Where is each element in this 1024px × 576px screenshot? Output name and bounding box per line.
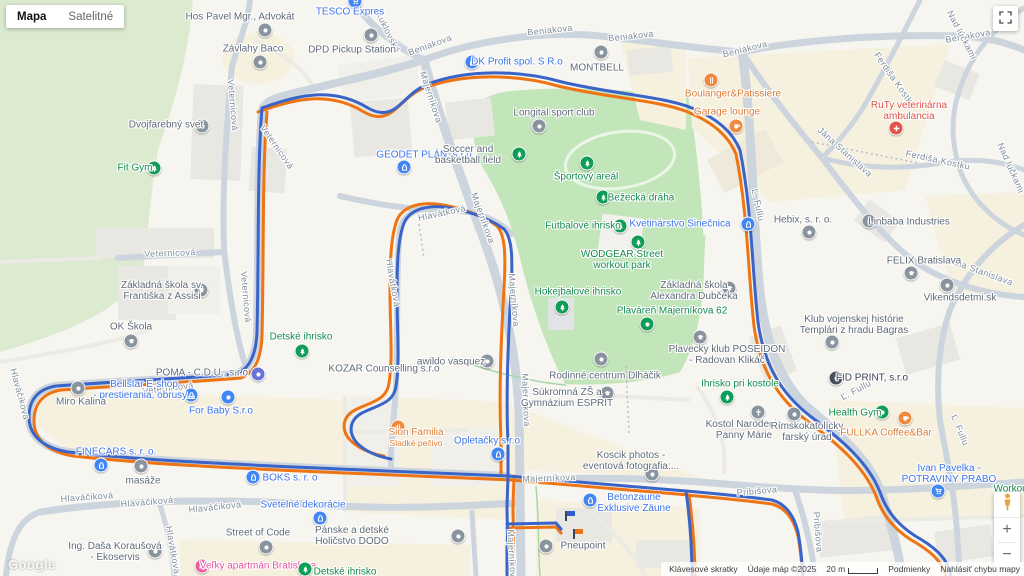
poi-label-soccer-basketball-field[interactable]: Soccer andbasketball field [435,144,501,166]
poi-label-plavecky-klub-poseidon[interactable]: Plavecky klub POSEIDON- Radovan Klikáč [669,344,786,366]
dot-icon[interactable] [134,459,149,474]
tree-icon[interactable] [555,300,570,315]
dot-icon[interactable] [258,23,273,38]
lock-icon[interactable] [94,458,109,473]
poi-label-fid-print[interactable]: FID PRINT, s.r.o [836,373,908,384]
dot-icon[interactable] [825,335,840,350]
poi-label-ivan-pavelka-potraviny[interactable]: Ivan Pavelka -POTRAVINY PRABO [902,463,997,485]
poi-label-plavaren-majernikova-62[interactable]: Plaváreň Majerníkova 62 [617,306,728,317]
poi-label-zs-alexandra-dubceka[interactable]: Základná školaAlexandra Dubčeka [650,280,737,302]
dot-icon[interactable] [451,529,466,544]
school-icon[interactable] [124,334,139,349]
report-map-error-link[interactable]: Nahlásiť chybu mapy [940,564,1020,574]
school-icon[interactable] [693,330,708,345]
poi-label-health-gym[interactable]: Health Gym [829,408,882,419]
lock-icon[interactable] [397,160,412,175]
poi-label-rimskokatolicky-urad[interactable]: Rímskokatolíckyfarský úrad [771,421,844,443]
poi-label-futbalove-ihrisko[interactable]: Futbalové ihrisko [545,221,621,232]
poi-label-vikendsdetmi[interactable]: Vikendsdetmi.sk [924,293,997,304]
tree-icon[interactable] [720,390,735,405]
poi-label-miro-kalina[interactable]: Miro Kalina [56,397,106,408]
dot-icon[interactable] [594,45,609,60]
poi-label-poma-cdu[interactable]: POMA - C.D.U., s.r.o [156,368,248,379]
poi-label-dvojfarebny-svet[interactable]: Dvojfarebný svet [129,120,203,131]
tree-icon[interactable] [631,235,646,250]
tree-icon[interactable] [580,156,595,171]
poi-label-rodinne-centrum-dlhacik[interactable]: Rodinné centrum Dlháčik [549,371,661,382]
poi-label-for-baby[interactable]: For Baby S.r.o [189,406,253,417]
poi-label-kvetinarstvo-sinecnica[interactable]: Kvetinárstvo Sinečnica [629,219,730,230]
lock-icon[interactable] [741,217,756,232]
poi-label-dk-profit[interactable]: DK Profit spol. S R.o [471,57,563,68]
map-canvas[interactable]: BeniakovaBeniakovaBeniakovaBeniakovaBeni… [0,0,1024,576]
poi-label-sukromna-zs-esprit[interactable]: Súkromná ZŠ aGymnázium ESPRIT [521,387,613,409]
dot-icon[interactable] [71,381,86,396]
poi-label-pneupoint[interactable]: Pneupoint [560,541,605,552]
attribution-bar: Klávesové skratky Údaje máp ©2025 20 m P… [661,562,1024,576]
map-type-satellite-button[interactable]: Satelitné [57,5,124,28]
map-data-copyright: Údaje máp ©2025 [748,564,817,574]
poi-label-boulanger-patissiere[interactable]: Boulanger&Patissiere [685,89,781,100]
poi-label-masaze[interactable]: masáže [125,476,160,487]
poi-label-svetelne-dekoracie[interactable]: Svetelné dekorácie [260,500,345,511]
map-type-map-button[interactable]: Mapa [6,5,57,28]
poi-label-wodgear-street-workout[interactable]: WODGEAR Streetworkout park [581,249,663,271]
poi-label-boks[interactable]: BOKS s. r. o [262,473,317,484]
poi-label-koscik-photos[interactable]: Koscik photos -eventová fotografia:... [583,450,679,472]
lock-icon[interactable] [491,447,506,462]
lock-icon[interactable] [583,493,598,508]
poi-label-dpd-pickup[interactable]: DPD Pickup Station [308,45,396,56]
poi-label-zs-frantiska-z-assisi[interactable]: Základná škola sv.Františka z Assisi [121,280,203,302]
poi-label-garage-lounge[interactable]: Garage lounge [694,107,760,118]
poi-label-detske-ihrisko[interactable]: Detské ihrisko [270,332,333,343]
pegman-control[interactable] [994,492,1020,518]
poi-label-fit-gym[interactable]: Fit Gym [118,163,153,174]
poi-label-linbaba-industries[interactable]: Linbaba Industries [868,217,950,228]
scale-line [848,568,878,574]
dot-icon[interactable] [251,367,266,382]
poi-label-longital-sport-club[interactable]: Longital sport club [513,108,594,119]
dot-icon[interactable] [640,317,655,332]
pegman-icon [1002,493,1013,516]
tree-icon[interactable] [298,562,313,576]
map-type-control: Mapa Satelitné [6,5,124,28]
poi-label-montbell[interactable]: MONTBELL [570,63,624,74]
dot-icon[interactable] [594,352,609,367]
lock-icon[interactable] [246,470,261,485]
cross-icon[interactable] [751,405,766,420]
dot-icon[interactable] [539,539,554,554]
route-start-flag [565,511,567,521]
tree-icon[interactable] [295,344,310,359]
poi-label-felix-bratislava[interactable]: FELIX Bratislava [887,256,961,267]
poi-label-fullka-coffee-bar[interactable]: FULLKA Coffee&Bar [840,428,932,439]
map-controls: + − [994,492,1020,567]
school-icon[interactable] [904,266,919,281]
zoom-in-button[interactable]: + [994,518,1020,542]
dot-icon[interactable] [532,119,547,134]
poi-label-betonzaune[interactable]: BetonzauneExklusive Zäune [597,492,670,514]
poi-label-ok-skola[interactable]: OK Škola [110,322,152,333]
poi-label-zavlahy-baco[interactable]: Závlahy Baco [223,44,284,55]
cup-icon[interactable] [729,119,744,134]
food-icon[interactable] [704,73,719,88]
poi-label-ruty-veterinarna[interactable]: RuTy veterinárnaambulancia [871,100,947,122]
poi-label-ihrisko-pri-kostole[interactable]: Ihrisko pri kostole [701,379,779,390]
poi-label-sion-familia[interactable]: Sion FamiliaSladké pečivo [388,427,443,449]
poi-label-holicstvo-dodo[interactable]: Pánske a detskéHoličstvo DODO [315,525,389,547]
poi-label-sportovy-areal[interactable]: Športový areál [554,172,618,183]
poi-label-finecars[interactable]: FINECARS s. r. o. [76,447,157,458]
route-end-flag [573,529,575,539]
cup-icon[interactable] [898,411,913,426]
dot-icon[interactable] [364,28,379,43]
tree-icon[interactable] [512,147,527,162]
dot-icon[interactable] [221,390,236,405]
poi-label-hebix[interactable]: Hebix, s. r. o. [774,215,832,226]
poi-label-hos-pavel-advokat[interactable]: Hos Pavel Mgr., Advokát [186,12,295,23]
poi-label-street-of-code[interactable]: Street of Code [226,528,290,539]
med-icon[interactable] [889,121,904,136]
keyboard-shortcuts-link[interactable]: Klávesové skratky [669,564,738,574]
poi-label-detske-ihrisko-2[interactable]: Detské ihrisko [314,567,377,576]
fullscreen-button[interactable] [993,6,1018,31]
poi-label-tesco-expres[interactable]: TESCO Expres [316,7,384,18]
poi-label-awildo-vasquez[interactable]: awildo vasquez [417,357,485,368]
poi-label-bezecka-draha[interactable]: Bežecká dráha [608,193,675,204]
fullscreen-icon [999,11,1012,27]
dot-icon[interactable] [940,278,955,293]
poi-label-dasa-korausova-ekoservis[interactable]: Ing. Daša Koraušová- Ekoservis [68,541,161,563]
poi-label-hokejbalove-ihrisko[interactable]: Hokejbalové ihrisko [535,287,622,298]
scale-label: 20 m [826,564,845,574]
lock-icon[interactable] [313,511,328,526]
cart-icon[interactable] [931,484,946,499]
scale-bar: 20 m [826,564,878,574]
dot-icon[interactable] [253,55,268,70]
terms-link[interactable]: Podmienky [888,564,930,574]
poi-label-klub-vojenskej-historie[interactable]: Klub vojenskej histórieTemplári z hradu … [800,314,908,336]
poi-label-bellstar-eshop[interactable]: Bellstar E-shop- prestierania, obrusy... [93,379,195,401]
dot-icon[interactable] [802,225,817,240]
dot-icon[interactable] [787,407,802,422]
dot-icon[interactable] [259,540,274,555]
google-logo[interactable]: Google [8,557,56,572]
poi-label-opletacky[interactable]: Opletačky s.r.o [454,436,520,447]
